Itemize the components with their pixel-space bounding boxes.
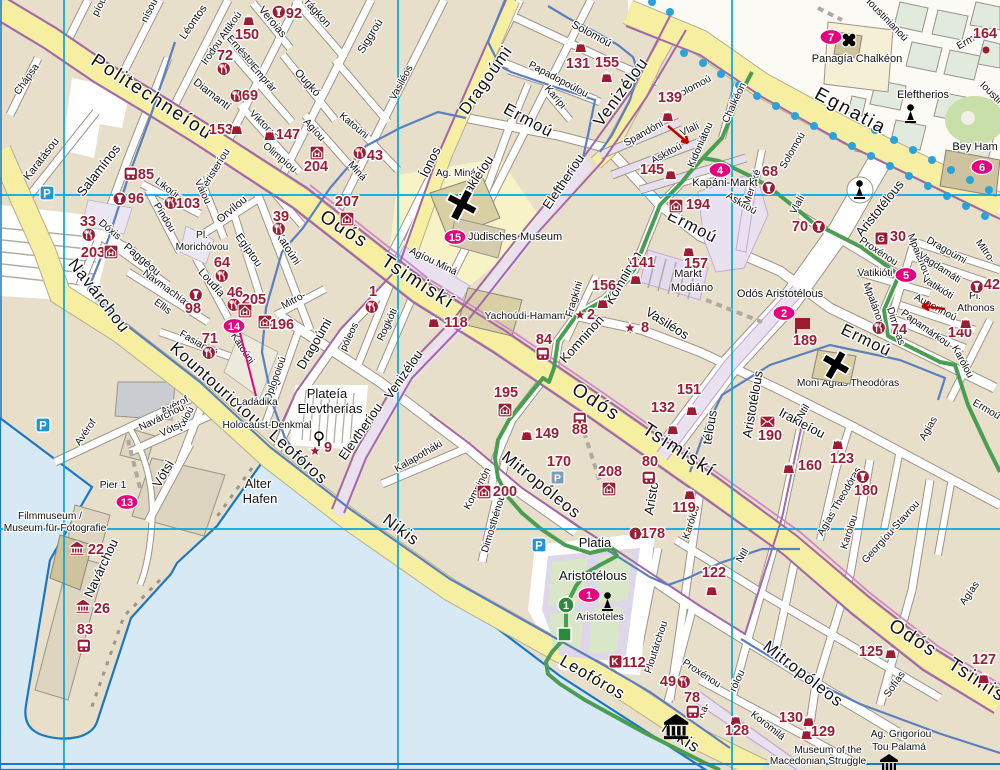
svg-text:170: 170 <box>547 454 571 470</box>
svg-text:207: 207 <box>335 194 359 210</box>
svg-text:149: 149 <box>535 426 559 442</box>
svg-text:Athonos: Athonos <box>957 303 994 314</box>
svg-text:Modiáno: Modiáno <box>671 282 713 294</box>
svg-text:42: 42 <box>984 277 1000 293</box>
svg-text:139: 139 <box>658 90 682 106</box>
svg-text:49: 49 <box>660 674 676 690</box>
svg-text:Panagía Chalkéon: Panagía Chalkéon <box>812 53 903 65</box>
svg-text:69: 69 <box>242 88 258 104</box>
svg-text:130: 130 <box>779 710 803 726</box>
svg-text:128: 128 <box>725 723 749 739</box>
svg-text:Pier 1: Pier 1 <box>100 480 127 491</box>
svg-text:180: 180 <box>854 483 878 499</box>
svg-text:70: 70 <box>792 219 808 235</box>
svg-text:123: 123 <box>830 451 854 467</box>
svg-text:Vatikióti: Vatikióti <box>858 268 893 279</box>
svg-text:160: 160 <box>798 458 822 474</box>
svg-text:1: 1 <box>586 590 592 602</box>
svg-text:Museum für Fotografie: Museum für Fotografie <box>4 523 107 534</box>
svg-text:84: 84 <box>536 332 552 348</box>
svg-text:68: 68 <box>762 164 778 180</box>
svg-text:13: 13 <box>121 497 133 509</box>
svg-text:208: 208 <box>598 464 622 480</box>
svg-text:147: 147 <box>276 127 300 143</box>
svg-text:127: 127 <box>972 652 996 668</box>
svg-text:6: 6 <box>979 162 985 174</box>
svg-text:14: 14 <box>228 321 241 333</box>
svg-text:204: 204 <box>304 159 328 175</box>
svg-text:Platia: Platia <box>579 535 612 550</box>
svg-text:164: 164 <box>973 26 997 42</box>
svg-text:Ladádika: Ladádika <box>236 397 278 408</box>
svg-text:203: 203 <box>81 245 105 261</box>
svg-text:5: 5 <box>903 270 909 282</box>
svg-text:88: 88 <box>572 422 588 438</box>
svg-text:Eleftherios: Eleftherios <box>897 89 949 101</box>
svg-text:119: 119 <box>672 500 695 516</box>
svg-text:22: 22 <box>88 542 104 558</box>
svg-text:Odós Aristotélous: Odós Aristotélous <box>737 288 824 300</box>
svg-text:4: 4 <box>717 165 724 177</box>
svg-text:83: 83 <box>77 622 93 638</box>
svg-text:190: 190 <box>758 428 782 444</box>
svg-text:Museum of the: Museum of the <box>794 745 862 756</box>
svg-text:Tou Palamá: Tou Palamá <box>872 742 926 753</box>
svg-text:155: 155 <box>595 55 619 71</box>
svg-text:Elevtherías: Elevtherías <box>297 401 363 416</box>
svg-text:Plateía: Plateía <box>307 386 348 401</box>
svg-text:43: 43 <box>367 148 383 164</box>
svg-text:132: 132 <box>651 400 675 416</box>
svg-text:7: 7 <box>828 32 834 44</box>
svg-text:2: 2 <box>781 308 787 320</box>
svg-text:Ag. Grigoríou: Ag. Grigoríou <box>871 729 932 740</box>
svg-text:Morichóvou: Morichóvou <box>176 242 229 253</box>
svg-text:145: 145 <box>640 162 664 178</box>
svg-text:85: 85 <box>138 167 154 183</box>
svg-text:125: 125 <box>859 644 883 660</box>
svg-text:Alter: Alter <box>245 476 272 491</box>
svg-text:196: 196 <box>270 317 294 333</box>
svg-text:Holocaust-Denkmal: Holocaust-Denkmal <box>223 420 312 431</box>
svg-text:157: 157 <box>684 256 708 272</box>
svg-text:156: 156 <box>592 278 616 294</box>
svg-text:9: 9 <box>324 440 332 456</box>
svg-text:189: 189 <box>793 333 817 349</box>
svg-text:Aristotélous: Aristotélous <box>559 568 627 583</box>
svg-text:153: 153 <box>209 122 233 138</box>
svg-text:Aristoteles: Aristoteles <box>576 612 624 623</box>
svg-text:131: 131 <box>566 56 590 72</box>
svg-text:78: 78 <box>684 690 700 706</box>
svg-text:80: 80 <box>642 454 658 470</box>
svg-text:150: 150 <box>235 27 259 43</box>
svg-text:Yachoúdi-Hamam: Yachoúdi-Hamam <box>485 311 566 322</box>
svg-text:Kapáni-Markt: Kapáni-Markt <box>692 177 757 189</box>
svg-text:96: 96 <box>128 191 144 207</box>
svg-text:92: 92 <box>286 6 302 22</box>
svg-text:2: 2 <box>587 307 595 323</box>
svg-text:30: 30 <box>890 229 906 245</box>
svg-text:129: 129 <box>811 724 835 740</box>
svg-text:103: 103 <box>176 196 200 212</box>
svg-text:71: 71 <box>202 331 218 347</box>
svg-text:195: 195 <box>494 385 518 401</box>
svg-text:Pl.: Pl. <box>196 230 208 241</box>
svg-text:1: 1 <box>563 600 569 612</box>
svg-text:Jüdisches Museum: Jüdisches Museum <box>468 231 562 243</box>
svg-text:Filmmuseum /: Filmmuseum / <box>18 511 82 522</box>
svg-text:Hafen: Hafen <box>243 491 278 506</box>
svg-text:Bey Ham: Bey Ham <box>952 141 997 153</box>
svg-text:15: 15 <box>449 232 461 244</box>
svg-text:112: 112 <box>622 655 645 671</box>
svg-text:1: 1 <box>369 284 377 300</box>
svg-text:194: 194 <box>686 197 710 213</box>
svg-text:118: 118 <box>444 315 467 331</box>
svg-text:141: 141 <box>631 255 655 271</box>
svg-text:G: G <box>877 234 885 245</box>
svg-text:Macedonian Struggle: Macedonian Struggle <box>770 756 867 767</box>
svg-text:178: 178 <box>641 526 665 542</box>
svg-text:122: 122 <box>702 565 726 581</box>
svg-text:98: 98 <box>185 301 201 317</box>
svg-text:K: K <box>611 657 619 668</box>
svg-text:26: 26 <box>94 601 110 617</box>
svg-text:8: 8 <box>641 320 649 336</box>
svg-text:74: 74 <box>891 322 907 338</box>
svg-text:151: 151 <box>677 382 701 398</box>
svg-text:200: 200 <box>493 484 517 500</box>
